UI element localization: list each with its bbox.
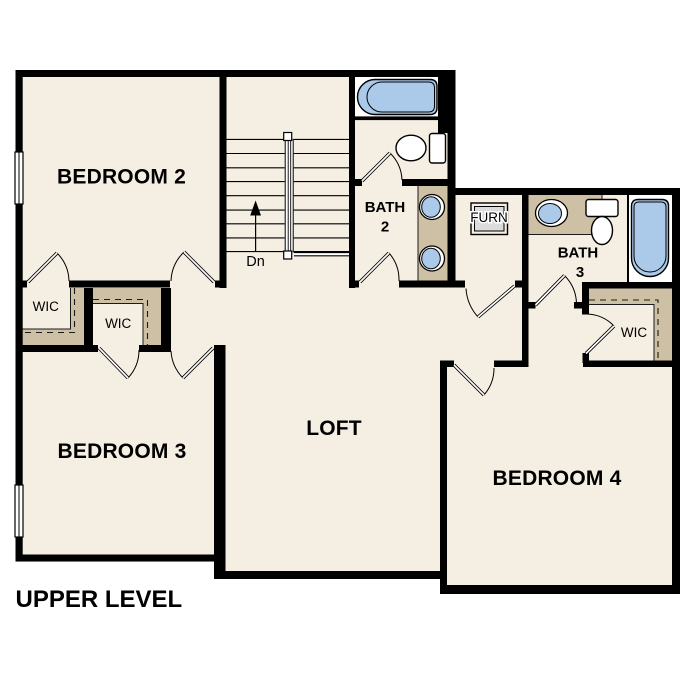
svg-text:LOFT: LOFT (306, 417, 362, 440)
svg-text:Dn: Dn (246, 254, 265, 270)
svg-text:BEDROOM 4: BEDROOM 4 (493, 467, 622, 490)
svg-text:BATH: BATH (558, 244, 599, 261)
svg-text:UPPER LEVEL: UPPER LEVEL (16, 586, 183, 613)
svg-text:WIC: WIC (621, 325, 647, 340)
svg-text:FURN: FURN (470, 210, 508, 225)
svg-text:BATH: BATH (365, 199, 406, 216)
svg-text:WIC: WIC (33, 299, 59, 314)
svg-text:3: 3 (576, 264, 584, 281)
svg-text:BEDROOM 3: BEDROOM 3 (58, 440, 187, 463)
svg-text:WIC: WIC (105, 316, 131, 331)
svg-text:BEDROOM 2: BEDROOM 2 (57, 165, 186, 188)
svg-text:2: 2 (381, 218, 389, 235)
